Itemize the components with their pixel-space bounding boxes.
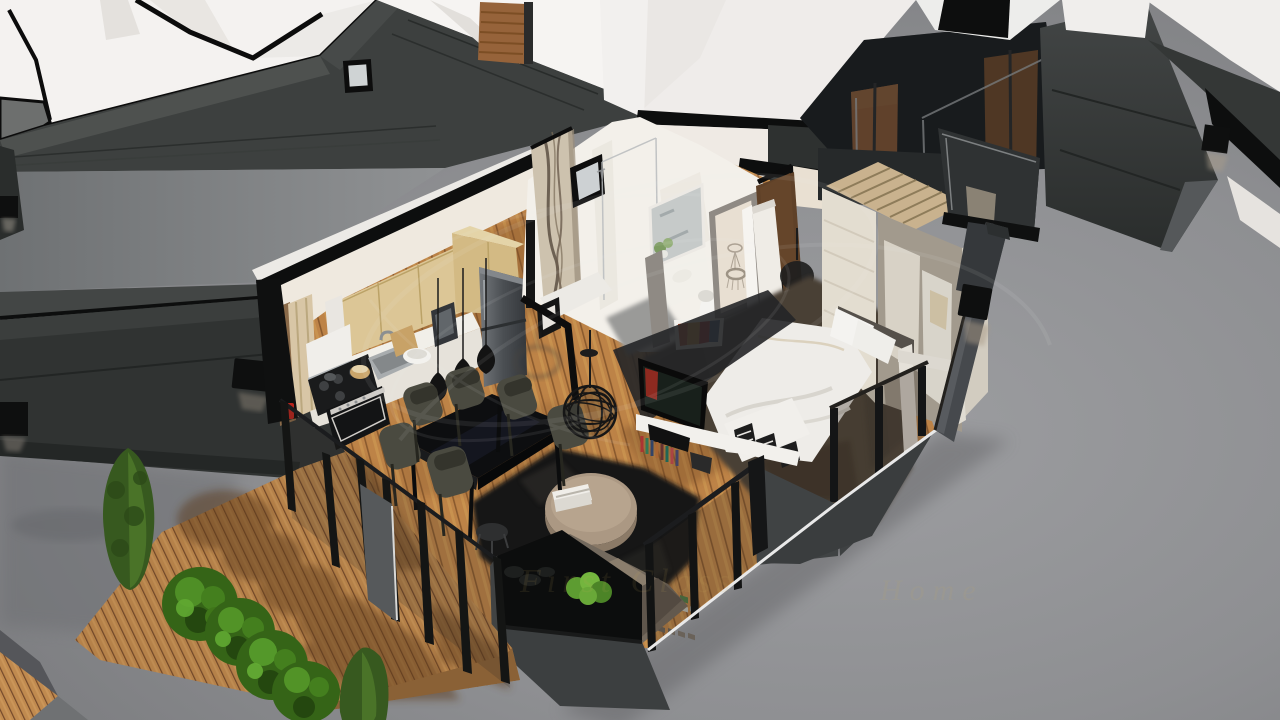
svg-text:Fırst Class: Fırst Class xyxy=(519,563,736,600)
svg-text:Home: Home xyxy=(879,574,984,607)
